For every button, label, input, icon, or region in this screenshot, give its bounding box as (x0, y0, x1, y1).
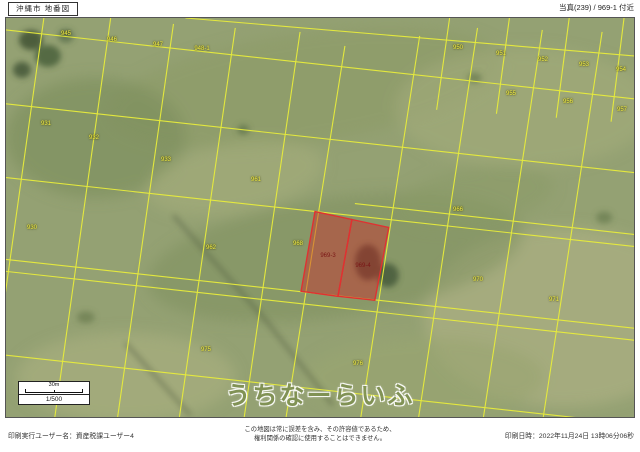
disclaimer: この地図は常に誤差を含み、その許容値であるため、 権利関係の確認に使用することは… (220, 425, 420, 443)
disclaimer-line-1: この地図は常に誤差を含み、その許容値であるため、 (220, 425, 420, 434)
aerial-photo-layer (6, 18, 634, 417)
highlighted-parcels (301, 212, 389, 301)
scale-bar-label: 30m (19, 383, 89, 388)
scale-bar (25, 389, 83, 393)
cadastral-map: 945946947948-195095195295395495595695793… (5, 17, 635, 418)
printed-by-label: 印刷実行ユーザー名：資産税課ユーザー4 (8, 430, 134, 440)
disclaimer-line-2: 権利関係の確認に使用することはできません。 (220, 434, 420, 443)
map-title: 沖縄市 地番図 (16, 4, 70, 13)
print-preview-page: 沖縄市 地番図 当真(239) / 969-1 付近 (0, 0, 640, 452)
scale-box: 30m 1/500 (18, 381, 90, 405)
map-title-box: 沖縄市 地番図 (8, 2, 78, 16)
scale-ratio: 1/500 (19, 394, 89, 404)
print-datetime-label: 印刷日時：2022年11月24日 13時06分06秒 (505, 430, 634, 440)
location-label: 当真(239) / 969-1 付近 (559, 3, 634, 13)
watermark: うちなーらいふ (225, 376, 414, 412)
